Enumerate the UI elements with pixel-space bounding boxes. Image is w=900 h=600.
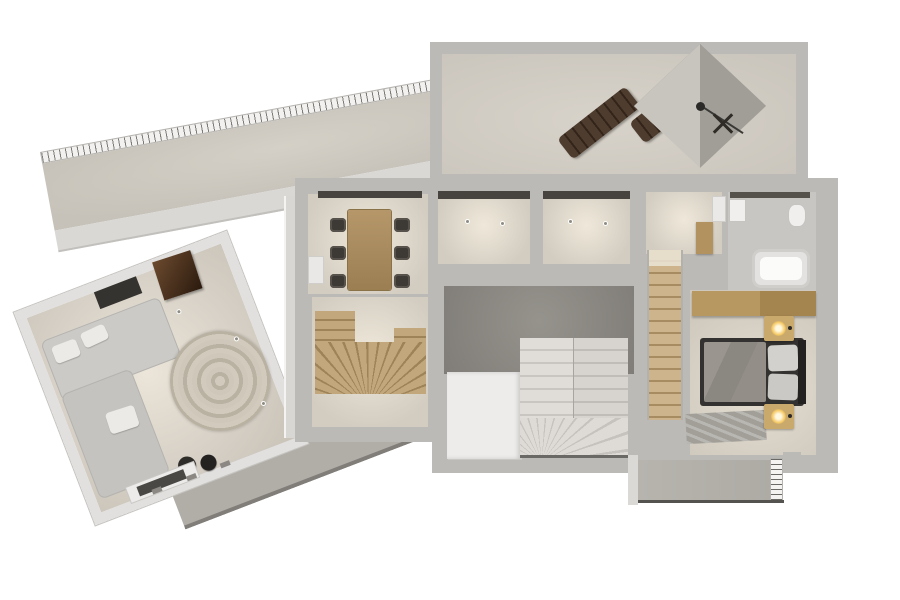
bathtub — [752, 249, 810, 288]
closet-block — [447, 372, 521, 459]
lamp-switch — [788, 326, 792, 330]
sink — [729, 199, 746, 222]
bathroom — [728, 192, 816, 290]
window-frame-mark — [220, 460, 231, 468]
parasol-face-west — [634, 44, 700, 168]
bed-blanket — [704, 342, 766, 402]
dining-chair — [330, 246, 346, 260]
upper-terrace — [430, 42, 808, 186]
nightstand — [764, 404, 794, 429]
bed-headboard — [798, 340, 806, 404]
pouf — [198, 452, 219, 473]
stair-divider — [573, 338, 574, 428]
ceiling-spotlight — [176, 308, 182, 314]
ceiling-spotlight — [568, 219, 573, 224]
sideboard — [308, 256, 324, 284]
wall-tv — [94, 276, 142, 309]
bed-pillow — [768, 344, 799, 371]
storage-room-a — [438, 194, 530, 264]
hall-cabinet — [712, 196, 726, 222]
stair-landing — [649, 250, 681, 266]
window-strip — [543, 191, 630, 199]
shelf-strip — [730, 192, 810, 198]
straight-staircase — [647, 250, 683, 420]
rear-balcony-floor — [638, 460, 770, 502]
bedroom — [690, 290, 816, 455]
white-stair-winder-fan — [520, 418, 628, 458]
sun-lounger — [557, 86, 641, 159]
dining-chair — [330, 274, 346, 288]
round-rug — [155, 316, 284, 445]
bedroom-rug — [685, 410, 766, 444]
bathtub-basin — [760, 257, 802, 280]
rear-balcony-edge — [638, 500, 784, 503]
wood-stair-room — [312, 297, 428, 427]
ceiling-spotlight — [603, 221, 608, 226]
bed-pillow — [768, 373, 799, 400]
dining-table — [348, 210, 391, 290]
ceiling-spotlight — [465, 219, 470, 224]
wood-stair-winder-fan — [315, 342, 426, 394]
toilet — [788, 204, 806, 227]
floorplan-canvas — [0, 0, 900, 600]
dining-chair — [394, 274, 410, 288]
wall-stub — [783, 452, 801, 472]
storage-room-b — [543, 194, 630, 264]
ceiling-spotlight — [500, 221, 505, 226]
dining-chair — [330, 218, 346, 232]
dining-chair — [394, 246, 410, 260]
dining-room — [308, 194, 428, 294]
rear-balcony-wall — [628, 455, 638, 505]
white-stair-flight-left — [520, 338, 574, 428]
lamp-switch — [788, 414, 792, 418]
wardrobe — [692, 291, 816, 316]
lamp-glow — [771, 409, 786, 424]
lamp-glow — [771, 321, 786, 336]
parasol-face-east — [700, 44, 766, 168]
wall-shelf — [696, 222, 713, 254]
fireplace-cube — [152, 250, 202, 300]
rear-balcony-railing — [770, 458, 783, 502]
nightstand — [764, 316, 794, 341]
window-strip — [438, 191, 530, 199]
white-stair-flight-right — [574, 338, 628, 418]
parasol-hub — [696, 102, 705, 111]
dining-chair — [394, 218, 410, 232]
window-strip — [318, 191, 422, 198]
hallway — [646, 192, 722, 254]
